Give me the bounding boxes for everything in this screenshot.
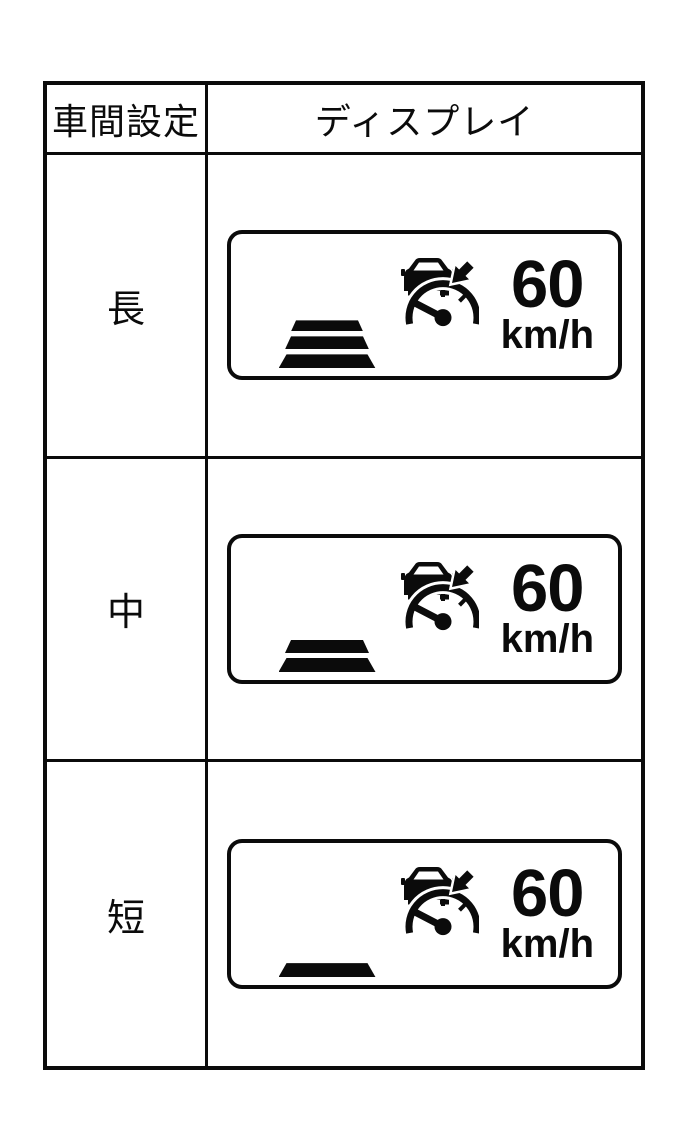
display-panel: 60 km/h bbox=[227, 839, 622, 989]
header-cell-setting: 車間設定 bbox=[47, 85, 208, 155]
setting-label-long: 長 bbox=[107, 278, 145, 333]
row-medium-setting-cell: 中 bbox=[47, 459, 208, 763]
distance-bars bbox=[277, 963, 377, 977]
row-medium-display-cell: 60 km/h bbox=[208, 459, 641, 763]
header-setting-label: 車間設定 bbox=[52, 93, 200, 145]
speed-unit: km/h bbox=[501, 923, 594, 965]
setting-label-short: 短 bbox=[107, 887, 145, 942]
adaptive-cruise-control-icon bbox=[399, 256, 479, 330]
setting-label-medium: 中 bbox=[107, 581, 145, 636]
speed-readout: 60 km/h bbox=[501, 256, 594, 356]
row-short-setting-cell: 短 bbox=[47, 762, 208, 1066]
speed-value: 60 bbox=[511, 560, 584, 618]
speed-readout: 60 km/h bbox=[501, 865, 594, 965]
speed-value: 60 bbox=[511, 865, 584, 923]
distance-bar bbox=[279, 963, 376, 977]
distance-setting-table: 車間設定 ディスプレイ 長 bbox=[43, 81, 645, 1070]
distance-bar bbox=[291, 320, 363, 331]
row-long-display-cell: 60 km/h bbox=[208, 155, 641, 459]
adaptive-cruise-control-icon bbox=[399, 560, 479, 634]
header-cell-display: ディスプレイ bbox=[208, 85, 641, 155]
adaptive-cruise-control-icon bbox=[399, 865, 479, 939]
distance-bars bbox=[277, 320, 377, 368]
speed-unit: km/h bbox=[501, 314, 594, 356]
row-short-display-cell: 60 km/h bbox=[208, 762, 641, 1066]
distance-bar bbox=[279, 354, 376, 368]
header-display-label: ディスプレイ bbox=[315, 93, 534, 145]
display-panel: 60 km/h bbox=[227, 230, 622, 380]
speed-readout: 60 km/h bbox=[501, 560, 594, 660]
row-long-setting-cell: 長 bbox=[47, 155, 208, 459]
distance-bars bbox=[277, 640, 377, 672]
speed-unit: km/h bbox=[501, 618, 594, 660]
distance-bar bbox=[285, 336, 369, 349]
distance-bar bbox=[279, 658, 376, 672]
display-panel: 60 km/h bbox=[227, 534, 622, 684]
distance-bar bbox=[285, 640, 369, 653]
speed-value: 60 bbox=[511, 256, 584, 314]
